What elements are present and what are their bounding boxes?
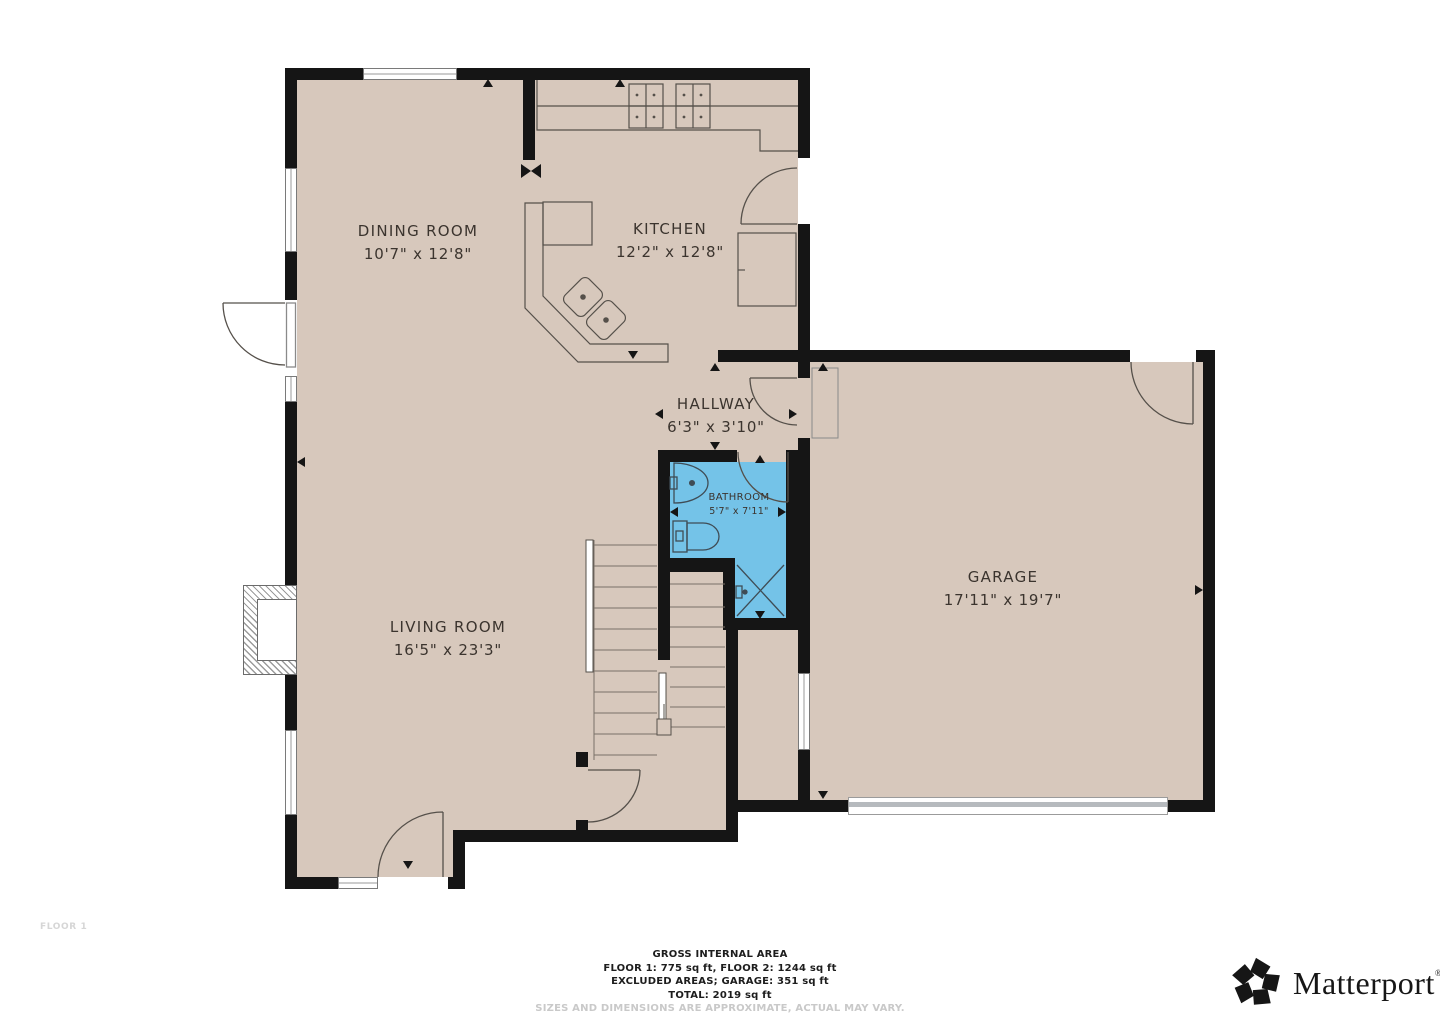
label-bathroom: BATHROOM 5'7" x 7'11" (708, 491, 769, 519)
area-line-total: TOTAL: 2019 sq ft (0, 989, 1440, 1003)
matterport-logo-text: Matterport® (1293, 965, 1440, 1002)
matterport-branding: Matterport® (1228, 956, 1440, 1010)
wall-dining-kitchen-stub (523, 80, 535, 160)
room-dims: 5'7" x 7'11" (708, 505, 769, 519)
patio-door-opening (378, 877, 448, 889)
kitchen-back-door-opening (798, 158, 810, 224)
wall-bathroom-inner (658, 558, 735, 572)
area-disclaimer: SIZES AND DIMENSIONS ARE APPROXIMATE, AC… (0, 1002, 1440, 1016)
room-dims: 17'11" x 19'7" (944, 589, 1062, 612)
bathroom-door-opening (737, 450, 786, 462)
registered-mark: ® (1435, 968, 1440, 978)
room-name: LIVING ROOM (390, 616, 506, 639)
room-dims: 10'7" x 12'8" (358, 243, 479, 266)
room-name: KITCHEN (616, 218, 724, 241)
area-line-excluded: EXCLUDED AREAS; GARAGE: 351 sq ft (0, 975, 1440, 989)
label-hallway: HALLWAY 6'3" x 3'10" (667, 393, 765, 439)
room-name: DINING ROOM (358, 220, 479, 243)
front-door-opening (285, 300, 297, 376)
room-name: GARAGE (944, 566, 1062, 589)
stair-top-patch (670, 572, 723, 618)
wall-shower-bottom (723, 618, 798, 630)
front-door-arc (223, 303, 285, 365)
window-small-left (285, 376, 297, 402)
floorplan-page: DINING ROOM 10'7" x 12'8" KITCHEN 12'2" … (0, 0, 1440, 1018)
wall-kitchen-hall (718, 350, 798, 362)
floor-tag: FLOOR 1 (40, 922, 87, 932)
window-living-left (285, 730, 297, 815)
area-summary: GROSS INTERNAL AREA FLOOR 1: 775 sq ft, … (0, 948, 1440, 1016)
room-dims: 12'2" x 12'8" (616, 241, 724, 264)
wall-bathroom-left (658, 450, 670, 660)
room-name: BATHROOM (708, 491, 769, 505)
floor-living-lower (297, 830, 453, 877)
area-line-floors: FLOOR 1: 775 sq ft, FLOOR 2: 1244 sq ft (0, 962, 1440, 976)
area-title: GROSS INTERNAL AREA (0, 948, 1440, 962)
window-living-bottom (338, 877, 378, 889)
vestibule-door-opening (576, 767, 588, 820)
garage-entry-door-opening (1130, 350, 1196, 362)
label-garage: GARAGE 17'11" x 19'7" (944, 566, 1062, 612)
room-dims: 16'5" x 23'3" (390, 639, 506, 662)
matterport-logo-icon (1228, 956, 1284, 1010)
window-dining-top (363, 68, 457, 80)
garage-door (848, 797, 1168, 815)
wall-bathroom-right (786, 450, 798, 630)
wall-garage-right (1203, 350, 1215, 812)
room-name: HALLWAY (667, 393, 765, 416)
window-garage-left-panel (798, 673, 810, 750)
room-dims: 6'3" x 3'10" (667, 416, 765, 439)
wall-entry-right (726, 618, 738, 842)
chimney-flue (257, 599, 297, 661)
label-dining-room: DINING ROOM 10'7" x 12'8" (358, 220, 479, 266)
wall-bottom-mid (453, 830, 738, 842)
window-dining-left (285, 168, 297, 252)
label-kitchen: KITCHEN 12'2" x 12'8" (616, 218, 724, 264)
hall-garage-door-opening (798, 378, 810, 438)
label-living-room: LIVING ROOM 16'5" x 23'3" (390, 616, 506, 662)
